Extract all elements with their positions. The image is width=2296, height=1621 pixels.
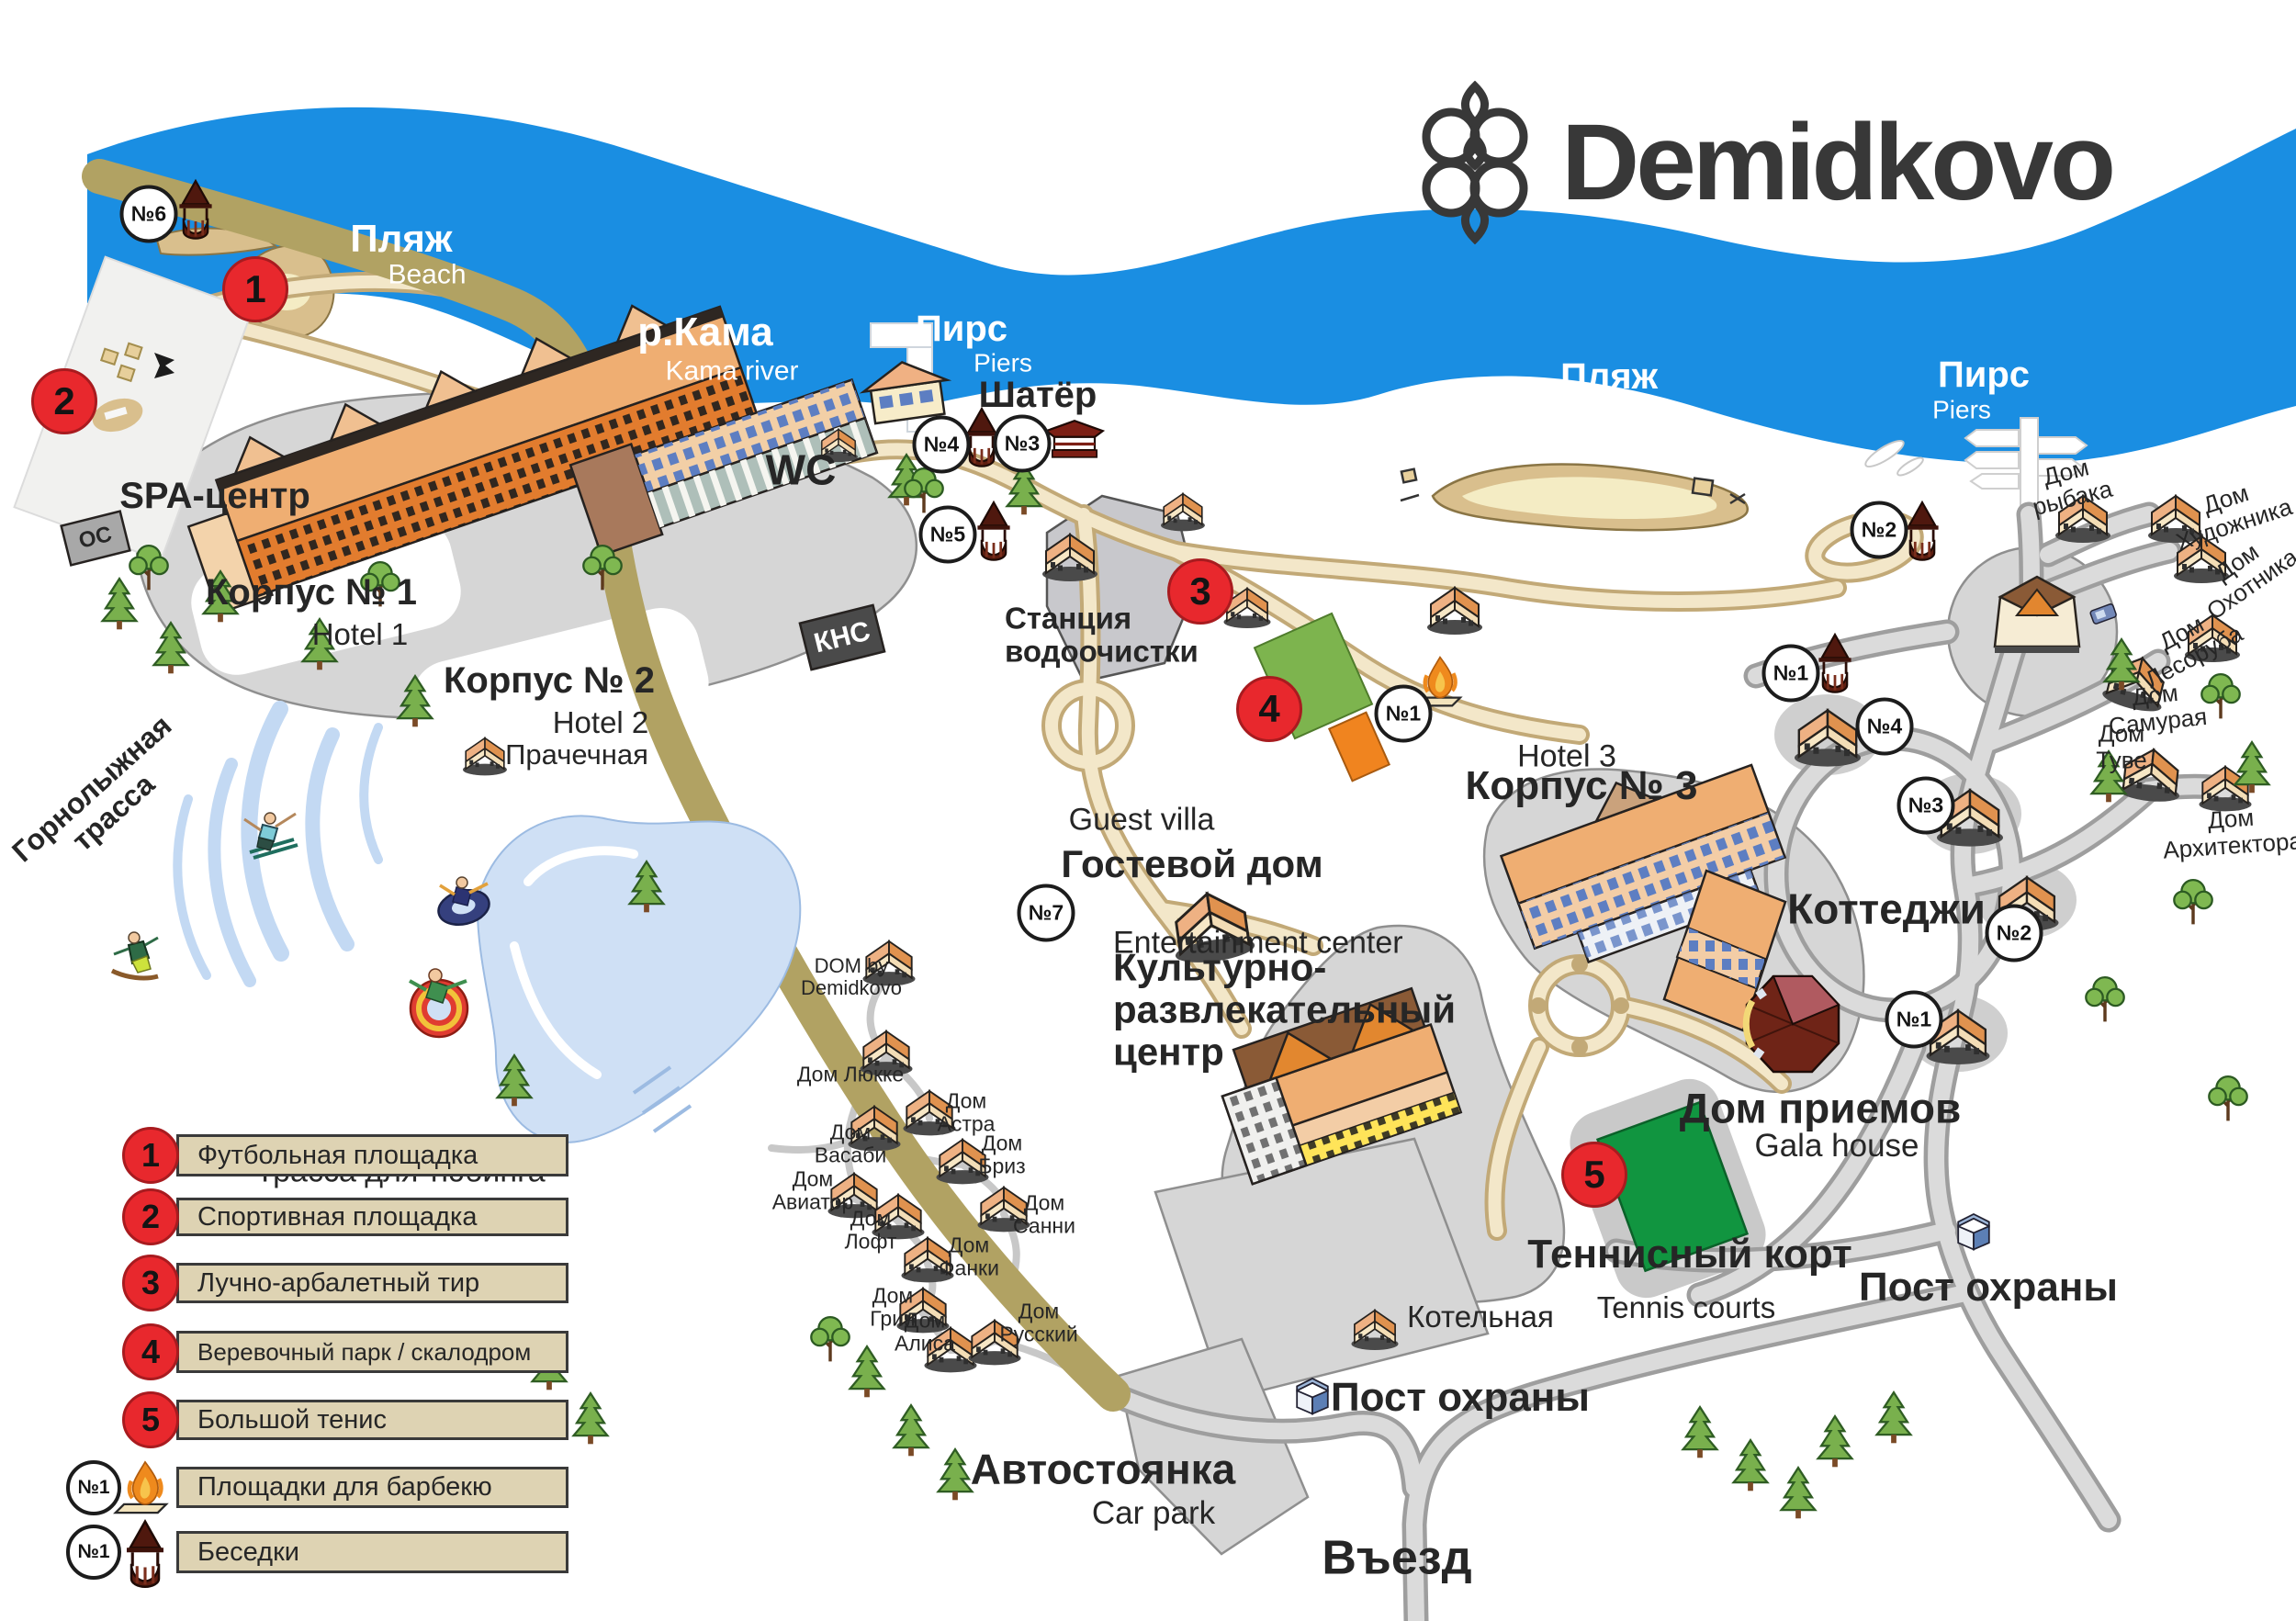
map-label-пирс: Пирс: [916, 309, 1007, 349]
map-label-теннисный-корт: Теннисный корт: [1527, 1233, 1851, 1277]
house-icon: [1427, 588, 1482, 635]
tree-icon: [583, 546, 621, 590]
map-label-р.кама: р.Кама: [637, 310, 772, 355]
map-label-дом-лофт: Дом Лофт: [845, 1208, 897, 1255]
gazebo-icon: [127, 1522, 163, 1587]
gazebo-icon: [179, 181, 211, 239]
legend-item-3: Лучно-арбалетный тир: [176, 1263, 568, 1303]
legend-item-4: Веревочный парк / скалодром: [176, 1331, 568, 1373]
tree-icon: [811, 1317, 849, 1361]
tree-icon: [2086, 977, 2123, 1021]
gazebo-icon: [1906, 502, 1938, 560]
legend-badge-6: №1: [66, 1460, 121, 1515]
marker-3: 3: [1167, 558, 1233, 625]
map-label-пост-охраны: Пост охраны: [1859, 1266, 2118, 1310]
shelter-icon: [1046, 421, 1103, 457]
map-label-guest-villa: Guest villa: [1069, 803, 1215, 837]
map-label-spa-центр: SPA-центр: [119, 476, 310, 516]
pine-icon: [2235, 742, 2269, 793]
legend-item-6: Площадки для барбекю: [176, 1467, 568, 1508]
house-icon: [1352, 1311, 1399, 1350]
house-icon: [463, 738, 507, 776]
brand-name: Demidkovo: [1561, 100, 2112, 225]
marker-1: 1: [222, 256, 288, 322]
map-label-hotel-2: Hotel 2: [553, 706, 649, 739]
map-label-корпус-№-1: Корпус № 1: [206, 572, 417, 613]
badge-№4: №4: [1856, 698, 1914, 756]
map-label-gala-house: Gala house: [1754, 1129, 1919, 1165]
pine-icon: [154, 623, 188, 673]
legend-item-7: Беседки: [176, 1531, 568, 1573]
badge-№1: №1: [1762, 645, 1820, 703]
map-label-пост-охраны: Пост охраны: [1331, 1376, 1590, 1420]
gazebo-icon: [977, 502, 1009, 560]
tree-icon: [129, 546, 167, 590]
pine-icon: [1818, 1416, 1852, 1467]
map-label-пляж: Пляж: [1560, 356, 1658, 397]
tree-icon: [2201, 674, 2239, 718]
house-icon: [1161, 494, 1205, 532]
pine-icon: [1877, 1392, 1911, 1443]
map-label-корпус-№-2: Корпус № 2: [444, 660, 655, 701]
pine-icon: [895, 1405, 929, 1456]
map-label-dom-by-demidkovo: DOM by Demidkovo: [801, 955, 902, 999]
map-label-пирс: Пирс: [1938, 355, 2030, 395]
resort-map: Футбольная площадка1Спортивная площадка2…: [0, 0, 2296, 1621]
pine-icon: [939, 1449, 973, 1500]
map-label-культурно--развлекательный-цен: Культурно- развлекательный центр: [1113, 947, 1456, 1075]
security-hut-icon: [1297, 1379, 1328, 1413]
car-icon: [2089, 603, 2117, 625]
marker-5: 5: [1561, 1142, 1627, 1208]
legend-badge-2: 2: [122, 1188, 179, 1245]
map-label-дом-алиса: Дом Алиса: [895, 1310, 955, 1356]
logo-icon: [1414, 81, 1536, 244]
map-label-wc: WC: [766, 447, 837, 494]
badge-№3: №3: [994, 415, 1052, 473]
map-label-дом-приемов: Дом приемов: [1680, 1086, 1962, 1132]
badge-№1: №1: [1885, 991, 1943, 1049]
map-label-шатёр: Шатёр: [979, 375, 1097, 415]
pine-icon: [1683, 1407, 1717, 1458]
legend-item-2: Спортивная площадка: [176, 1198, 568, 1236]
map-label-дом-русский: Дом Русский: [999, 1300, 1077, 1347]
legend-badge-4: 4: [122, 1323, 179, 1380]
pine-icon: [630, 861, 664, 912]
map-label-piers: Piers: [1932, 397, 1991, 425]
map-label-дом-бриз: Дом Бриз: [978, 1132, 1025, 1179]
map-label-дом-архитектора: Дом Архитектора: [2160, 801, 2296, 863]
pine-icon: [1782, 1468, 1816, 1518]
badge-№7: №7: [1018, 884, 1075, 942]
map-label-въезд: Въезд: [1322, 1532, 1471, 1584]
map-label-kama-river: Kama river: [665, 356, 798, 387]
pine-icon: [574, 1393, 608, 1444]
map-label-hotel-1: Hotel 1: [312, 618, 409, 651]
map-label-дом-васаби: Дом Васаби: [815, 1121, 886, 1168]
map-label-корпус-№-3: Корпус № 3: [1466, 764, 1698, 808]
badge-№2: №2: [1986, 905, 2043, 962]
badge-№2: №2: [1851, 501, 1908, 559]
map-label-beach: Beach: [388, 260, 466, 290]
map-label-дом-санни: Дом Санни: [1013, 1192, 1075, 1239]
pine-icon: [1734, 1440, 1768, 1491]
map-label-дом-фанки: Дом Фанки: [939, 1234, 999, 1281]
legend-badge-3: 3: [122, 1255, 179, 1311]
badge-№4: №4: [913, 416, 971, 474]
legend-item-1: Футбольная площадка: [176, 1134, 568, 1176]
map-label-прачечная: Прачечная: [505, 739, 648, 771]
map-label-дом-авиатор: Дом Авиатор: [772, 1168, 854, 1215]
map-label-пляж: Пляж: [350, 218, 452, 260]
map-label-piers: Piers: [974, 350, 1032, 378]
map-label-beach: Beach: [1519, 399, 1597, 429]
pine-icon: [103, 579, 137, 629]
marker-4: 4: [1236, 676, 1302, 742]
map-label-car-park: Car park: [1092, 1496, 1215, 1532]
map-label-станция-водоочистки: Станция водоочистки: [1005, 602, 1199, 670]
logo: Demidkovo: [1414, 81, 2112, 244]
tree-icon: [2209, 1076, 2246, 1120]
security-hut-icon: [1958, 1214, 1989, 1249]
map-label-автостоянка: Автостоянка: [971, 1447, 1236, 1493]
pine-icon: [399, 676, 433, 726]
gazebo-icon: [1818, 635, 1851, 692]
legend-badge-5: 5: [122, 1391, 179, 1448]
badge-№1: №1: [1375, 685, 1433, 743]
house-icon: [1042, 535, 1097, 581]
flame-icon: [116, 1462, 166, 1513]
badge-№3: №3: [1897, 777, 1955, 835]
tree-icon: [2174, 880, 2212, 924]
badge-№6: №6: [120, 186, 178, 243]
map-label-котельная: Котельная: [1407, 1300, 1554, 1334]
map-label-гостевой-дом: Гостевой дом: [1061, 843, 1322, 885]
map-label-дом-люкке: Дом Люкке: [797, 1063, 904, 1086]
pine-icon: [498, 1055, 532, 1106]
map-label-дом-астра: Дом Астра: [938, 1090, 996, 1137]
map-label-tennis-courts: Tennis courts: [1597, 1291, 1775, 1324]
map-label-дом-туве: Дом Туве: [2096, 720, 2146, 772]
legend-badge-7: №1: [66, 1525, 121, 1580]
pine-icon: [850, 1346, 884, 1397]
marker-2: 2: [31, 368, 97, 434]
badge-№5: №5: [919, 506, 977, 564]
house-icon: [1795, 710, 1861, 766]
legend-item-5: Большой тенис: [176, 1400, 568, 1440]
legend-badge-1: 1: [122, 1127, 179, 1184]
map-label-коттеджи: Коттеджи: [1787, 886, 1986, 933]
